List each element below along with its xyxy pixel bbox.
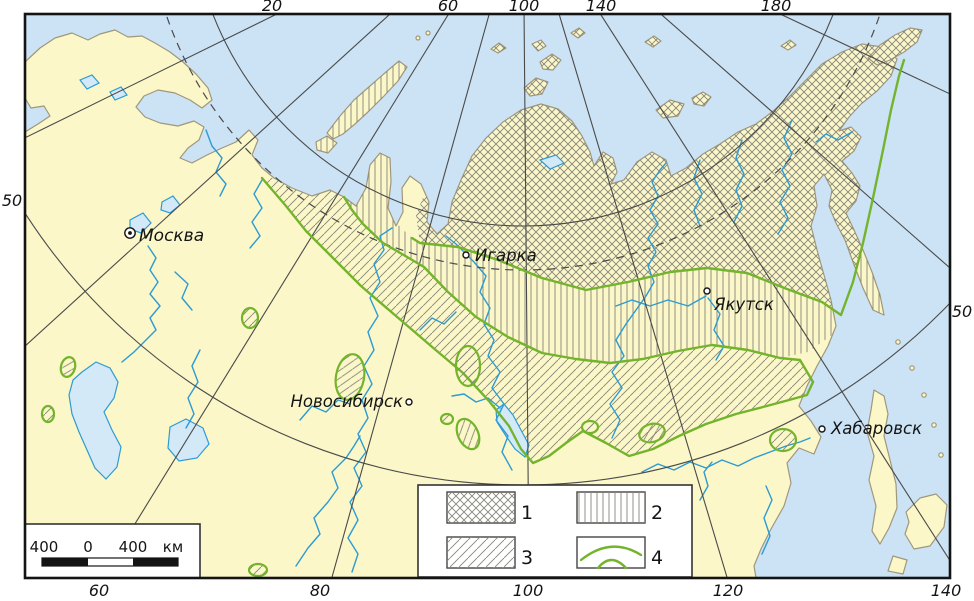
city-label-khabarovsk: Хабаровск [830,419,922,438]
legend-number-4: 4 [651,547,663,569]
legend-number-1: 1 [521,502,533,524]
left-label-50: 50 [2,191,22,210]
scale-label-left: 400 [30,538,59,556]
city-label-igarka: Игарка [475,246,537,265]
bottom-label-80: 80 [310,581,330,600]
top-label-100: 100 [509,0,540,15]
bottom-label-120: 120 [713,581,744,600]
scale-bar-segment-black-1 [42,558,88,566]
city-label-moscow: Москва [139,226,204,246]
scale-bar-segment-black-2 [133,558,178,566]
permafrost-map: Москва Игарка Якутск Новосибирск Хабаров… [0,0,974,601]
top-label-60: 60 [438,0,458,15]
map-page: Москва Игарка Якутск Новосибирск Хабаров… [0,0,974,601]
scale-label-zero: 0 [83,538,93,556]
bottom-label-140: 140 [931,581,962,600]
legend-number-3: 3 [521,547,533,569]
bottom-label-100: 100 [513,581,544,600]
right-label-50: 50 [952,302,972,321]
city-marker-igarka: Игарка [463,246,537,265]
top-label-20: 20 [262,0,282,15]
city-marker-novosibirsk: Новосибирск [290,392,412,411]
scale-label-right: 400 [119,538,148,556]
legend: 1 2 3 4 [418,485,692,577]
top-label-180: 180 [761,0,792,15]
city-marker-khabarovsk: Хабаровск [819,419,922,438]
scale-bar: 400 0 400 км [25,524,200,578]
city-label-yakutsk: Якутск [713,295,774,314]
scale-unit: км [163,538,183,556]
legend-number-2: 2 [651,502,663,524]
top-label-140: 140 [586,0,617,15]
city-label-novosibirsk: Новосибирск [290,392,403,411]
bottom-label-60: 60 [89,581,109,600]
